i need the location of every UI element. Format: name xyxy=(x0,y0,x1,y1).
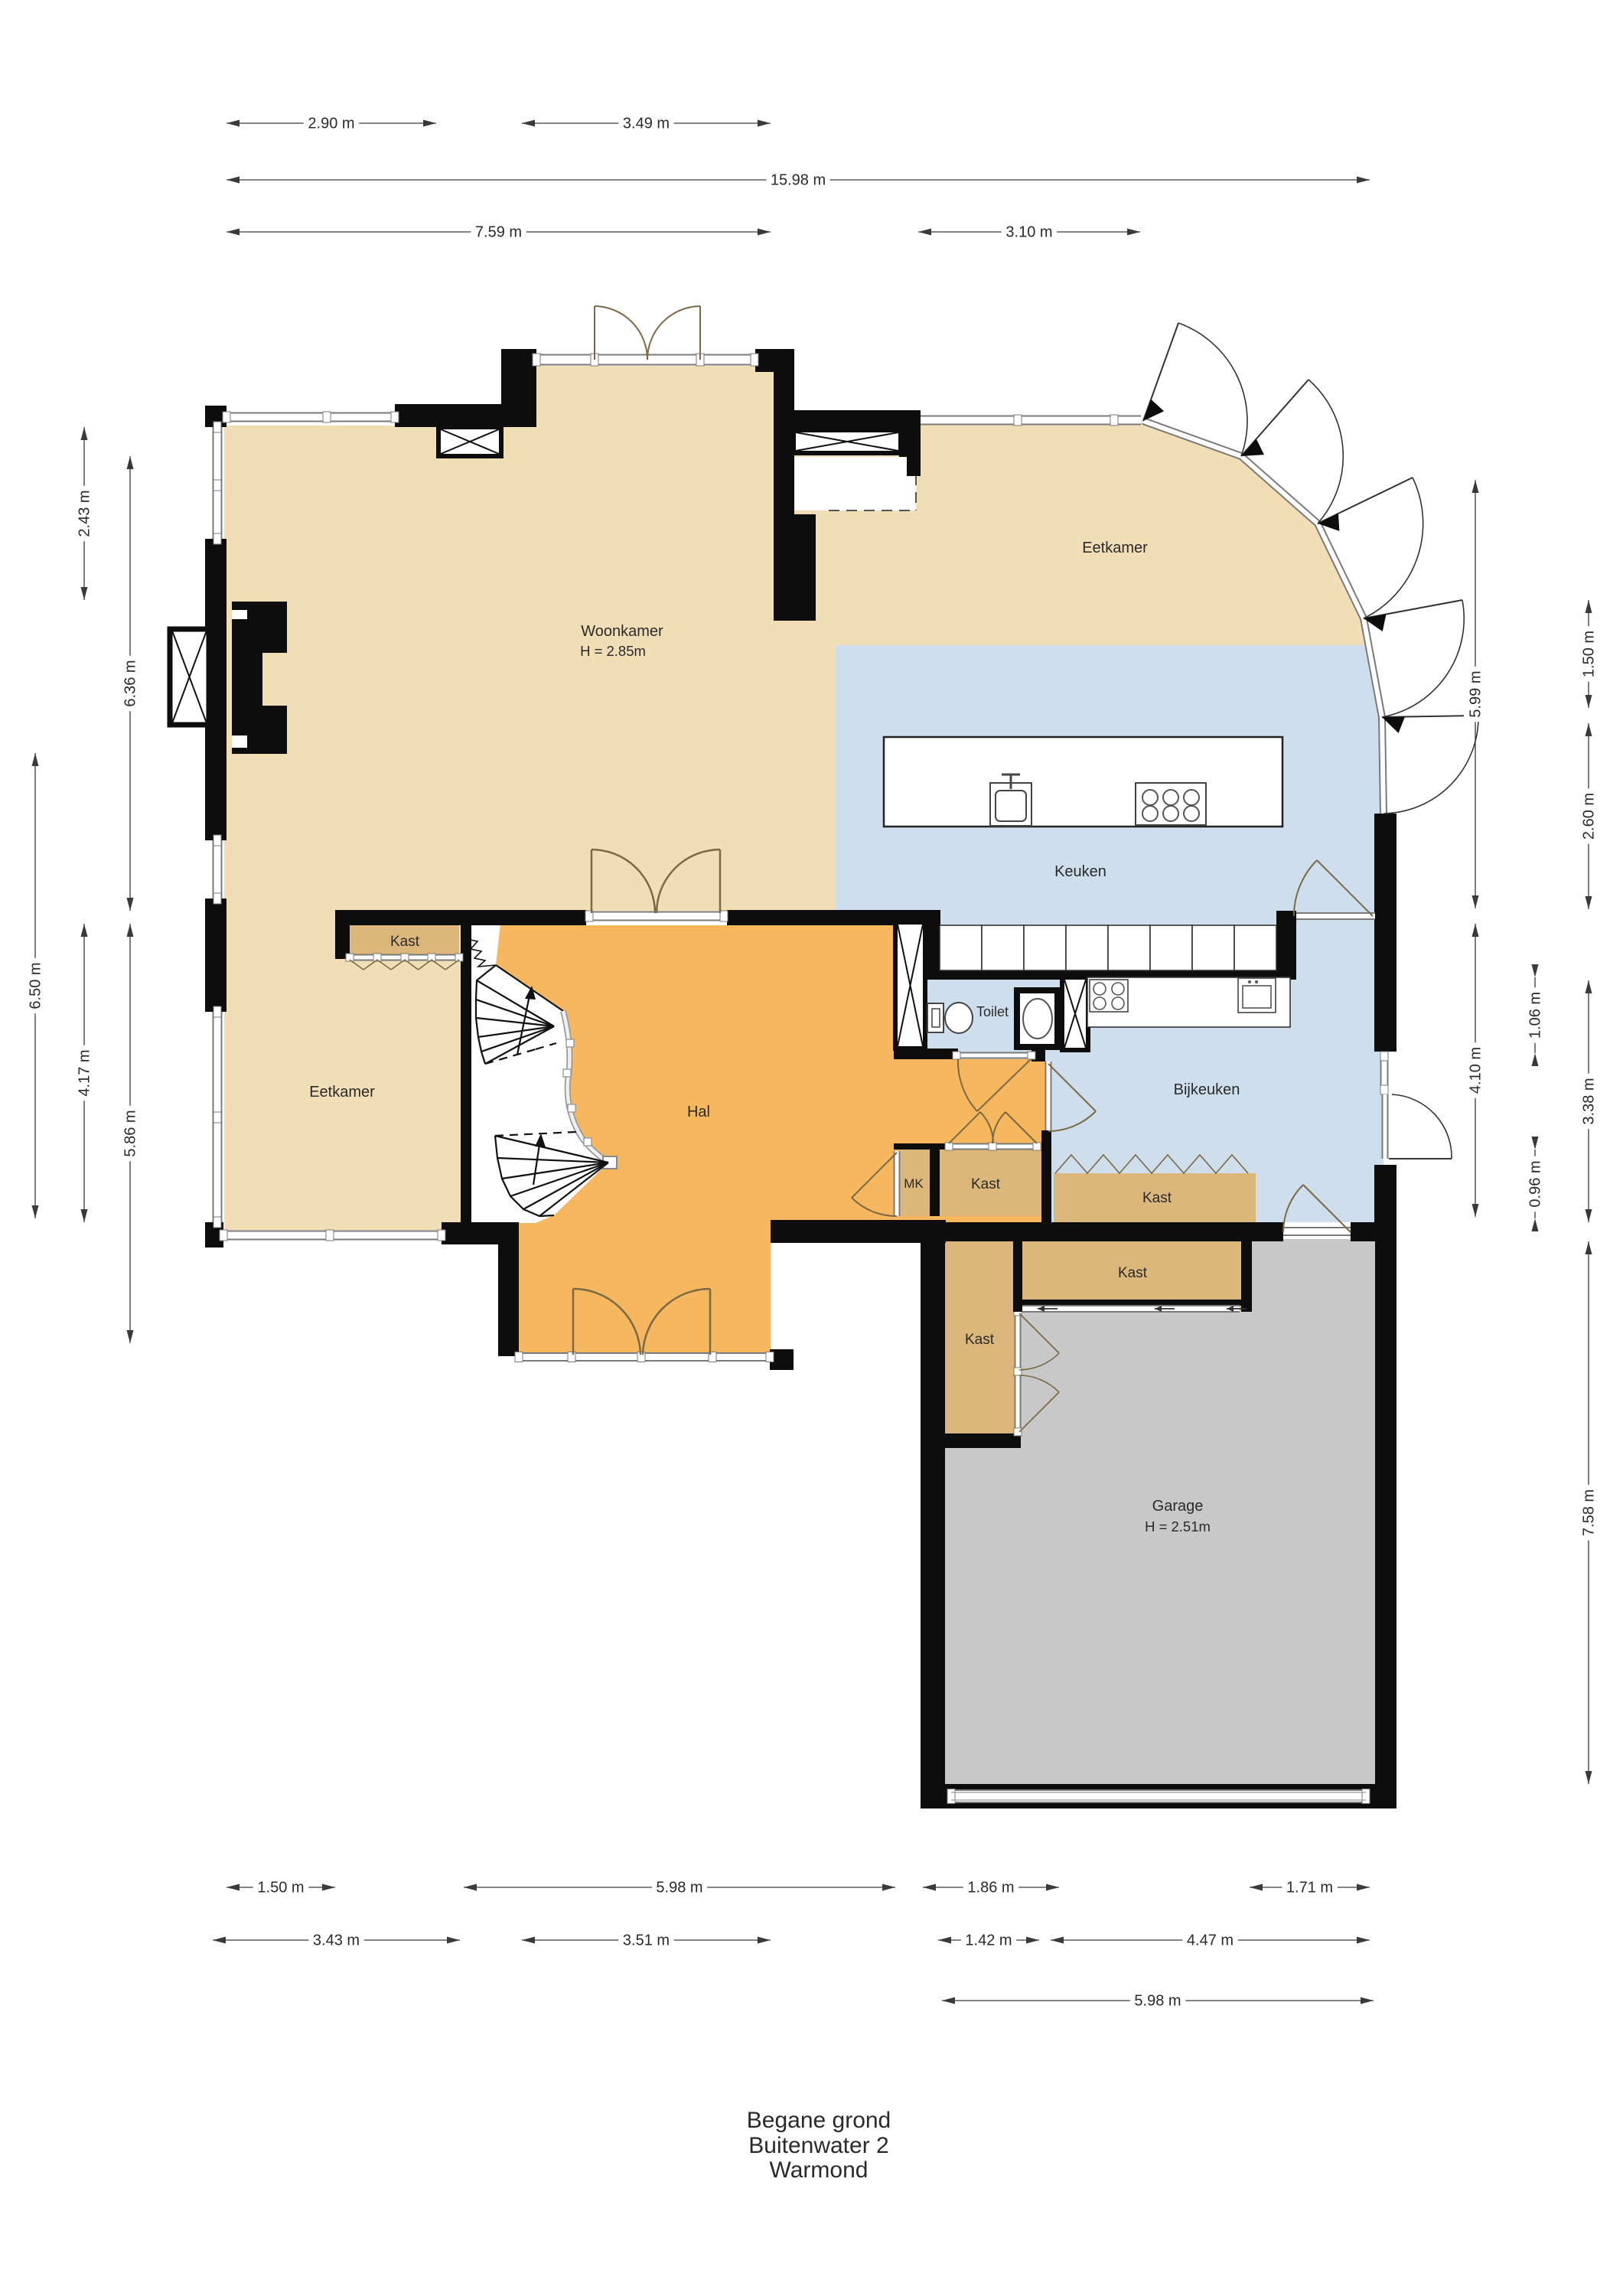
svg-text:3.10 m: 3.10 m xyxy=(1005,223,1052,240)
svg-text:5.99 m: 5.99 m xyxy=(1467,670,1484,717)
svg-text:Eetkamer: Eetkamer xyxy=(309,1084,375,1101)
svg-text:Garage: Garage xyxy=(1152,1498,1204,1515)
svg-text:3.38 m: 3.38 m xyxy=(1580,1078,1597,1124)
svg-text:1.06 m: 1.06 m xyxy=(1527,992,1543,1039)
svg-text:7.58 m: 7.58 m xyxy=(1580,1489,1597,1536)
svg-text:Begane grond: Begane grond xyxy=(747,2108,891,2133)
svg-text:Keuken: Keuken xyxy=(1054,863,1106,880)
svg-text:2.60 m: 2.60 m xyxy=(1580,793,1597,840)
svg-text:MK: MK xyxy=(904,1176,924,1191)
svg-text:3.51 m: 3.51 m xyxy=(623,1932,670,1949)
svg-text:1.86 m: 1.86 m xyxy=(967,1879,1014,1896)
svg-text:1.42 m: 1.42 m xyxy=(965,1932,1012,1949)
svg-text:5.98 m: 5.98 m xyxy=(656,1879,702,1896)
svg-text:Kast: Kast xyxy=(971,1176,1001,1192)
svg-text:0.96 m: 0.96 m xyxy=(1527,1160,1543,1207)
svg-text:3.49 m: 3.49 m xyxy=(623,115,670,132)
svg-text:15.98 m: 15.98 m xyxy=(771,171,826,188)
svg-text:4.17 m: 4.17 m xyxy=(76,1049,93,1096)
svg-text:1.50 m: 1.50 m xyxy=(257,1879,304,1896)
svg-text:6.50 m: 6.50 m xyxy=(27,962,44,1009)
svg-text:4.10 m: 4.10 m xyxy=(1467,1047,1484,1094)
svg-text:1.71 m: 1.71 m xyxy=(1286,1879,1333,1896)
svg-text:Kast: Kast xyxy=(1142,1190,1172,1206)
svg-text:Kast: Kast xyxy=(1118,1265,1148,1281)
svg-text:Kast: Kast xyxy=(965,1332,995,1348)
svg-text:5.98 m: 5.98 m xyxy=(1134,1992,1181,2009)
svg-text:7.59 m: 7.59 m xyxy=(475,223,522,240)
svg-text:Woonkamer: Woonkamer xyxy=(581,623,663,640)
svg-text:H = 2.85m: H = 2.85m xyxy=(580,643,646,659)
svg-text:6.36 m: 6.36 m xyxy=(122,660,139,706)
svg-text:Kast: Kast xyxy=(390,934,420,950)
svg-text:Bijkeuken: Bijkeuken xyxy=(1174,1081,1240,1098)
svg-text:Hal: Hal xyxy=(687,1104,710,1120)
svg-text:4.47 m: 4.47 m xyxy=(1187,1932,1234,1949)
svg-text:5.86 m: 5.86 m xyxy=(122,1110,139,1156)
svg-text:2.90 m: 2.90 m xyxy=(308,115,354,132)
svg-text:Eetkamer: Eetkamer xyxy=(1082,540,1148,556)
svg-text:Warmond: Warmond xyxy=(770,2157,869,2183)
svg-text:H = 2.51m: H = 2.51m xyxy=(1145,1518,1211,1534)
svg-text:Toilet: Toilet xyxy=(976,1004,1009,1019)
svg-text:1.50 m: 1.50 m xyxy=(1580,631,1597,677)
svg-text:2.43 m: 2.43 m xyxy=(76,490,93,536)
svg-text:Buitenwater 2: Buitenwater 2 xyxy=(748,2133,888,2158)
svg-text:3.43 m: 3.43 m xyxy=(313,1932,360,1949)
